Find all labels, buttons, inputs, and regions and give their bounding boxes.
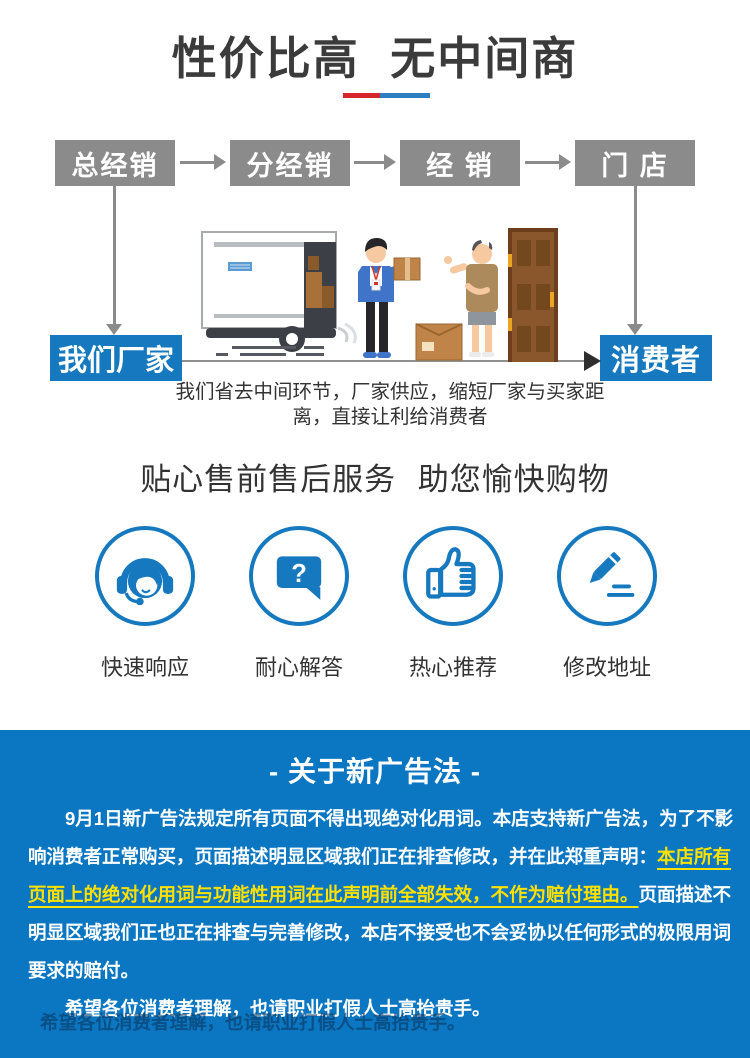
flow-line-down-right (634, 186, 637, 324)
services-title: 贴心售前售后服务 助您愉快购物 (0, 454, 750, 499)
service-label-fast-response: 快速响应 (75, 650, 215, 682)
notice-line: 要求的赔付。 (28, 952, 728, 990)
notice-body: 9月1日新广告法规定所有页面不得出现绝对化用词。本店支持新广告法，为了不影 响消… (28, 800, 728, 1028)
underline-red-segment (343, 93, 380, 98)
flow-box-consumer: 消费者 (600, 335, 712, 381)
flow-box-dealer: 经 销 (400, 140, 520, 186)
question-bubble-icon: ? (270, 547, 328, 605)
notice-ghost-line: 希望各位消费者理解，也请职业打假人士高抬贵手。 (40, 1004, 466, 1042)
underline-blue-segment (380, 93, 430, 98)
package-box-icon (416, 324, 462, 360)
delivery-truck-icon (202, 232, 355, 356)
highlighted-text: 本店所有 (657, 846, 731, 867)
flow-arrow-right-icon (354, 154, 396, 170)
flow-box-store: 门 店 (575, 140, 695, 186)
notice-line: 明显区域我们正也正在排查与完善修改，本店不接受也不会妥协以任何形式的极限用词 (28, 914, 728, 952)
title-underline (343, 93, 430, 98)
flow-caption-line2: 离，直接让利给消费者 (15, 405, 750, 430)
flow-arrow-right-icon (180, 154, 226, 170)
notice-header: - 关于新广告法 - (0, 750, 750, 790)
door-icon (508, 228, 558, 362)
promo-page: 性价比高 无中间商 总经销 分经销 经 销 门 店 我们厂家 消费者 (0, 0, 750, 1058)
service-circle-recommend (403, 526, 503, 626)
flow-line-down-left (113, 186, 116, 324)
flow-box-our-factory: 我们厂家 (50, 335, 182, 381)
service-circle-edit-address (557, 526, 657, 626)
service-label-recommend: 热心推荐 (383, 650, 523, 682)
delivery-man-icon (358, 238, 420, 358)
flow-caption: 我们省去中间环节，厂家供应，缩短厂家与买家距 离，直接让利给消费者 (15, 380, 750, 430)
notice-line: 响消费者正常购买，页面描述明显区域我们正在排查修改，并在此郑重声明：本店所有 (28, 838, 728, 876)
service-circle-fast-response (95, 526, 195, 626)
service-label-edit-address: 修改地址 (537, 650, 677, 682)
flow-arrow-down-icon (106, 324, 122, 335)
highlighted-text: 页面上的绝对化用词与功能性用词在此声明前全部失效，不作为赔付理由。 (28, 884, 639, 905)
arrow-head-right-icon (584, 351, 601, 371)
notice-line: 9月1日新广告法规定所有页面不得出现绝对化用词。本店支持新广告法，为了不影 (28, 800, 728, 838)
pencil-edit-icon (578, 547, 636, 605)
factory-direct-illustration (188, 228, 560, 362)
thumbs-up-icon (424, 547, 482, 605)
notice-line: 页面上的绝对化用词与功能性用词在此声明前全部失效，不作为赔付理由。页面描述不 (28, 876, 728, 914)
flow-caption-line1: 我们省去中间环节，厂家供应，缩短厂家与买家距 (15, 380, 750, 405)
flow-arrow-right-icon (525, 154, 571, 170)
advertising-law-notice: - 关于新广告法 - 9月1日新广告法规定所有页面不得出现绝对化用词。本店支持新… (0, 730, 750, 1058)
flow-arrow-down-icon (627, 324, 643, 335)
service-circle-patient-answer: ? (249, 526, 349, 626)
flow-box-sub-distributor: 分经销 (230, 140, 350, 186)
page-title: 性价比高 无中间商 (0, 22, 750, 87)
headset-agent-icon (116, 547, 174, 605)
svg-text:?: ? (291, 560, 307, 588)
service-label-patient-answer: 耐心解答 (229, 650, 369, 682)
flow-box-general-distributor: 总经销 (55, 140, 175, 186)
